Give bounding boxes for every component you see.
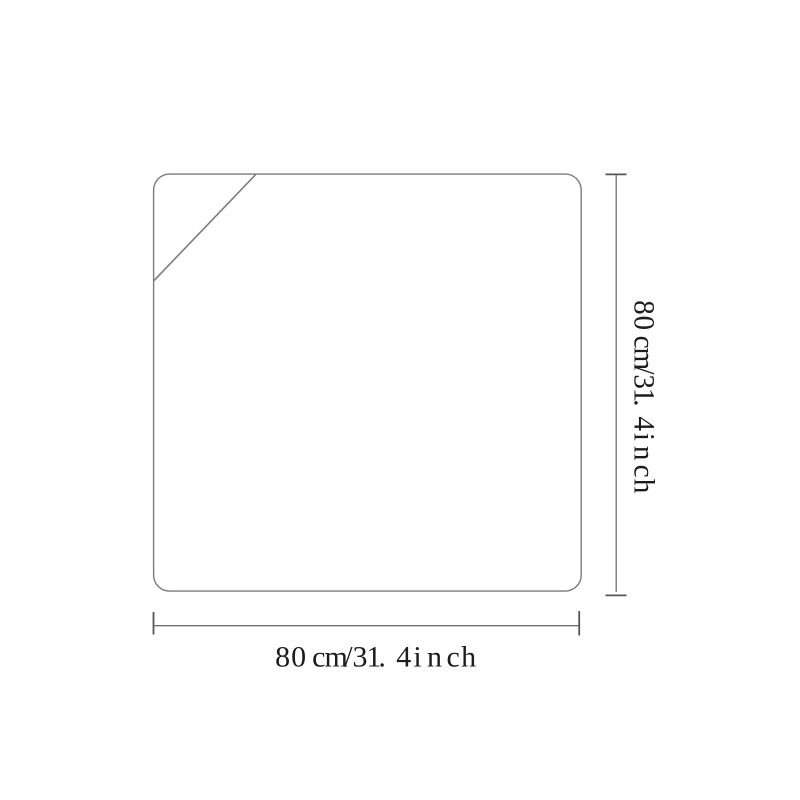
svg-text:80cm/31.4inch: 80cm/31.4inch xyxy=(628,300,660,494)
svg-text:80cm/31.4inch: 80cm/31.4inch xyxy=(275,640,476,673)
